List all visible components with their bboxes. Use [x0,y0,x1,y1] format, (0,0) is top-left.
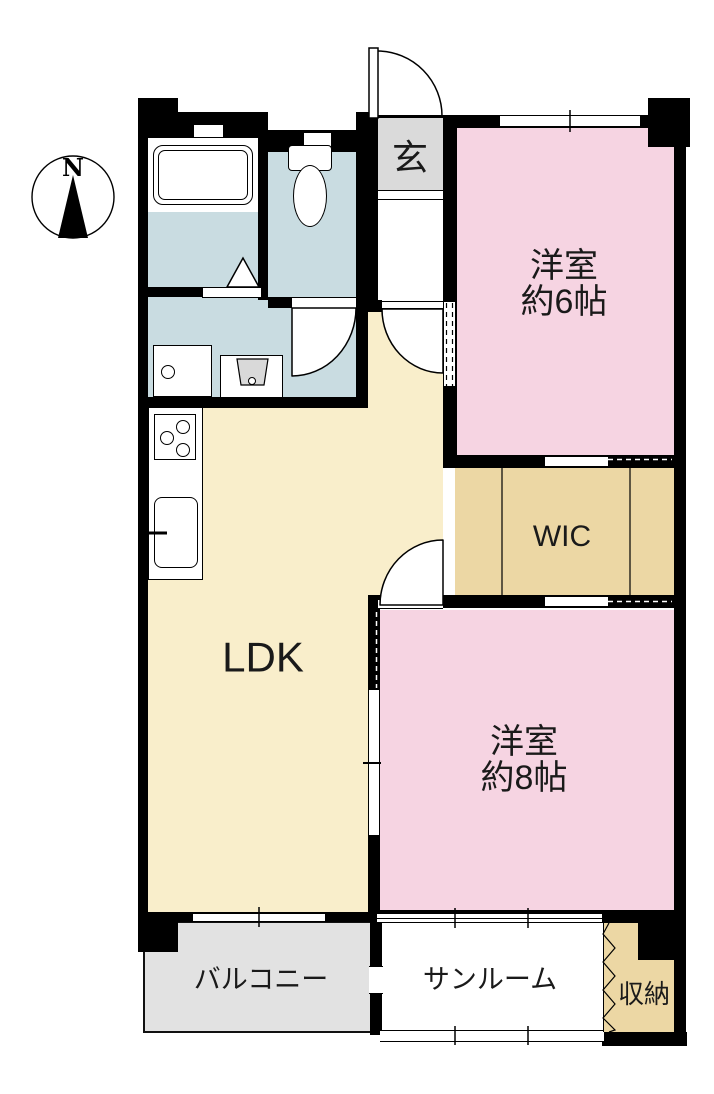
room-wic-label: WIC [533,521,591,553]
room-western6-label-line1: 洋室 [521,248,608,284]
room-western8-label-line1: 洋室 [481,724,568,760]
room-sunroom-label: サンルーム [423,966,557,995]
room-western6-label: 洋室 約6帖 [521,248,608,320]
compass-north-label: N [62,153,84,182]
entrance-door-leaf [369,48,378,118]
bath-folding-door-icon [227,258,259,287]
vanity-drain [249,378,256,385]
floor-plan: N 玄 洋室 約6帖 WIC LDK 洋室 約8帖 バルコニー サンルーム 収納 [0,0,714,1094]
western8-door-arc [380,540,443,605]
accordion-door-icon [603,923,615,1032]
washroom-door-arc [292,308,356,376]
room-western8-label: 洋室 約8帖 [481,724,568,796]
room-balcony-label: バルコニー [194,966,328,995]
plan-symbols: N [0,0,714,1094]
ldk-door-arc [382,309,443,373]
entrance-door-arc [378,51,442,116]
room-ldk-label: LDK [222,636,304,681]
room-storage-label: 収納 [618,981,670,1009]
room-western6-label-line2: 約6帖 [521,284,608,320]
room-genkan-label: 玄 [392,139,428,177]
compass-north-icon: N [32,153,114,238]
room-western8-label-line2: 約8帖 [481,760,568,796]
